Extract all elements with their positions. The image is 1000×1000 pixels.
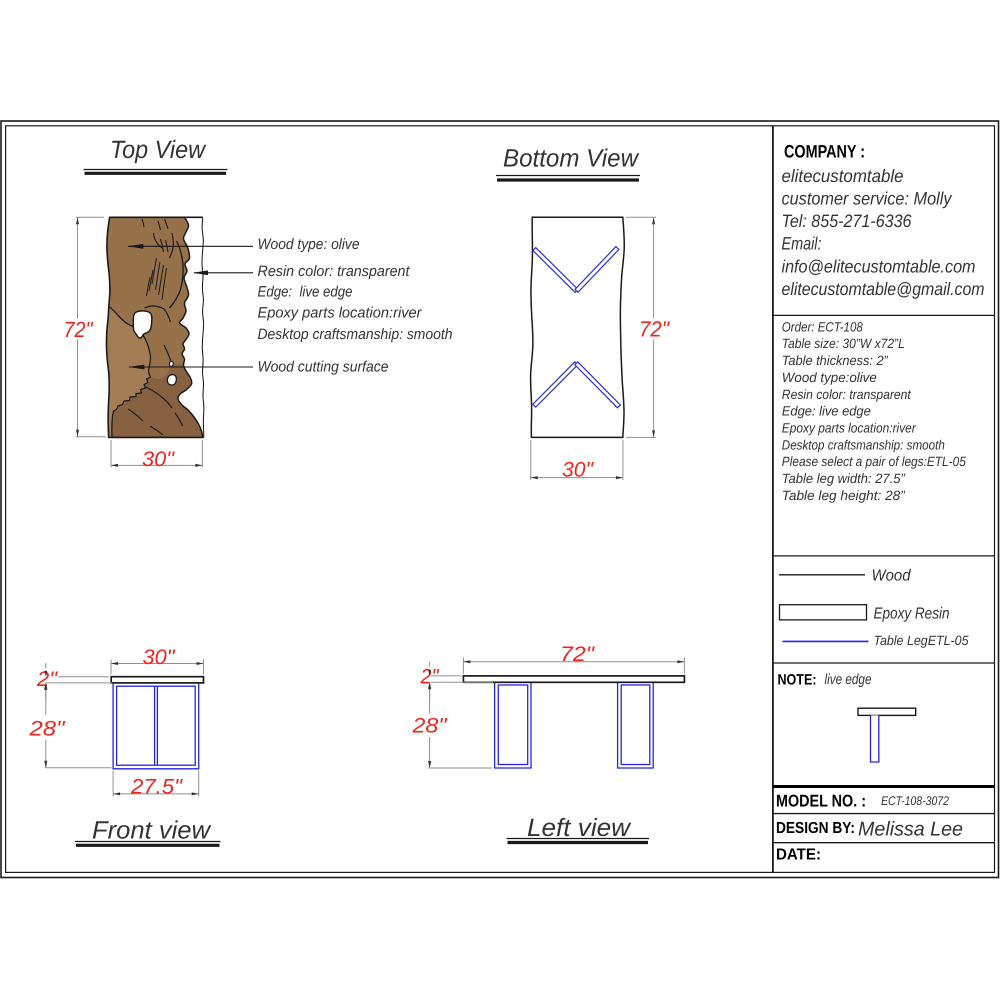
svg-text:Left view: Left view [527,814,632,842]
svg-text:Please select a pair of legs:E: Please select a pair of legs:ETL-05 [782,454,966,469]
svg-text:Wood type: olive: Wood type: olive [258,236,360,253]
svg-text:DESIGN BY:: DESIGN BY: [776,820,855,837]
svg-text:Tel: 855-271-6336: Tel: 855-271-6336 [782,211,913,231]
svg-text:Wood: Wood [872,568,912,585]
svg-text:72": 72" [560,643,596,666]
svg-text:2": 2" [36,668,59,691]
svg-text:Table leg height: 28”: Table leg height: 28” [782,488,906,503]
svg-text:elitecustomtable@gmail.com: elitecustomtable@gmail.com [782,279,985,299]
svg-text:Epoxy parts location:river: Epoxy parts location:river [782,421,916,436]
svg-text:COMPANY :: COMPANY : [784,142,865,162]
svg-text:Bottom View: Bottom View [503,145,640,173]
svg-text:28": 28" [28,718,66,741]
svg-text:Email:: Email: [782,234,822,254]
svg-text:info@elitecustomtable.com: info@elitecustomtable.com [782,256,976,276]
svg-text:Wood type:olive: Wood type:olive [782,370,877,385]
svg-text:Resin color: transparent: Resin color: transparent [258,263,411,280]
svg-text:30": 30" [562,459,595,482]
svg-text:live edge: live edge [825,672,872,688]
svg-text:72": 72" [639,317,670,342]
svg-text:30": 30" [142,448,176,471]
svg-text:Wood cutting surface: Wood cutting surface [258,358,389,375]
svg-text:Top View: Top View [110,136,207,164]
svg-text:MODEL NO. :: MODEL NO. : [776,792,866,811]
svg-text:Epoxy parts location:river: Epoxy parts location:river [258,304,423,321]
svg-text:Edge: live edge: Edge: live edge [782,404,871,419]
svg-text:Table size: 30”W x72”L: Table size: 30”W x72”L [782,336,905,351]
svg-text:Table leg width: 27.5”: Table leg width: 27.5” [782,471,905,486]
svg-text:Resin color: transparent: Resin color: transparent [782,387,912,402]
svg-text:Table LegETL-05: Table LegETL-05 [874,633,969,648]
svg-text:Epoxy Resin: Epoxy Resin [874,605,950,622]
svg-text:27.5": 27.5" [130,776,184,799]
svg-text:28": 28" [411,715,448,738]
svg-text:Order: ECT-108: Order: ECT-108 [782,319,863,334]
svg-text:DATE:: DATE: [776,847,821,864]
svg-text:Melissa Lee: Melissa Lee [858,818,963,840]
svg-text:30": 30" [143,646,177,669]
svg-text:Table thickness: 2”: Table thickness: 2” [782,353,888,368]
svg-text:ECT-108-3072: ECT-108-3072 [881,794,949,808]
svg-text:Front view: Front view [92,816,212,844]
svg-text:Desktop craftsmanship: smooth: Desktop craftsmanship: smooth [782,437,945,452]
svg-text:72": 72" [64,317,94,342]
svg-text:Desktop craftsmanship: smooth: Desktop craftsmanship: smooth [258,326,453,343]
svg-text:Edge: live edge: Edge: live edge [258,284,353,301]
svg-text:NOTE:: NOTE: [778,672,817,689]
svg-text:customer service: Molly: customer service: Molly [782,189,953,209]
svg-text:elitecustomtable: elitecustomtable [782,166,904,186]
